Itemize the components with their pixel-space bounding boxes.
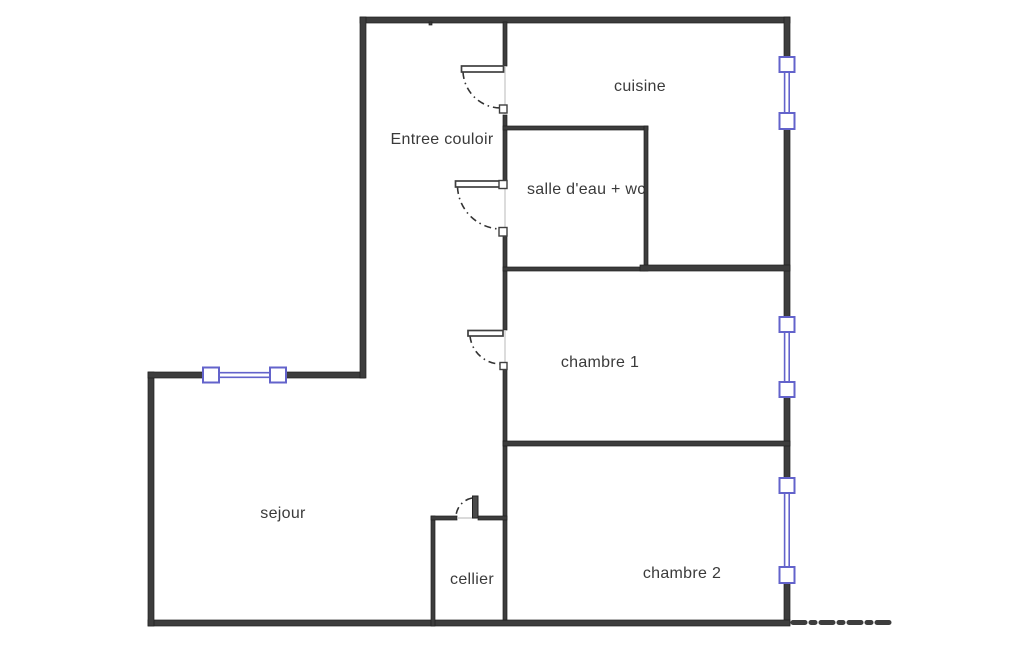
window-jamb <box>780 382 795 397</box>
window-symbol-cuisine <box>780 57 795 129</box>
window-mask <box>217 371 272 380</box>
door-hinge <box>500 105 508 113</box>
door-hinge <box>499 228 507 237</box>
door-openings <box>457 66 505 518</box>
window-symbol-chambre-2 <box>780 478 795 583</box>
door-hinge <box>500 363 507 370</box>
door-swing-arc <box>456 498 472 516</box>
door-hinge <box>499 181 507 189</box>
door-swing-arc <box>463 72 501 108</box>
wall-cellier-top-right <box>478 516 507 520</box>
wall-bottom <box>148 620 790 626</box>
wall-cellier-top-left <box>431 516 457 520</box>
door-leaf <box>473 496 479 518</box>
wall-cuisine-bottom <box>640 265 790 271</box>
door-swing-arc <box>470 336 501 364</box>
wall-cellier-left <box>431 516 435 626</box>
wall-top-joint <box>429 22 432 25</box>
wall-corridor-seg-1 <box>503 22 507 66</box>
door-leaf <box>468 331 503 337</box>
window-jamb <box>780 567 795 583</box>
interior-walls <box>431 22 790 626</box>
door-swing-symbol-salle-deau <box>456 181 508 237</box>
wall-salle-deau-top <box>503 126 648 130</box>
door-leaf <box>456 181 504 187</box>
door-swing-symbol-cellier <box>456 496 478 518</box>
window-symbol-sejour <box>203 368 286 383</box>
floor-plan: Entree couloir cuisine salle d'eau + wc … <box>0 0 1025 650</box>
wall-corridor-seg-4 <box>503 368 507 620</box>
window-jamb <box>203 368 219 383</box>
door-leaf <box>462 66 504 72</box>
window-jamb <box>780 113 795 129</box>
window-jamb <box>780 317 795 332</box>
wall-corridor-seg-2 <box>503 115 507 181</box>
wall-left-upper <box>360 17 366 378</box>
wall-left-lower <box>148 372 154 626</box>
wall-chambre-divider <box>503 441 790 446</box>
wall-salle-deau-right <box>644 126 648 271</box>
wall-top <box>360 17 790 23</box>
window-jamb <box>780 57 795 72</box>
door-swing-arc <box>458 187 502 229</box>
door-swing-symbol-chambre-1 <box>468 331 507 370</box>
wall-salle-deau-bottom <box>503 267 644 271</box>
window-jamb <box>270 368 286 383</box>
window-jamb <box>780 478 795 493</box>
window-symbol-chambre-1 <box>780 317 795 397</box>
floor-plan-drawing <box>0 0 1025 650</box>
door-swing-symbol-entree <box>462 66 508 113</box>
wall-corridor-seg-3 <box>503 236 507 330</box>
